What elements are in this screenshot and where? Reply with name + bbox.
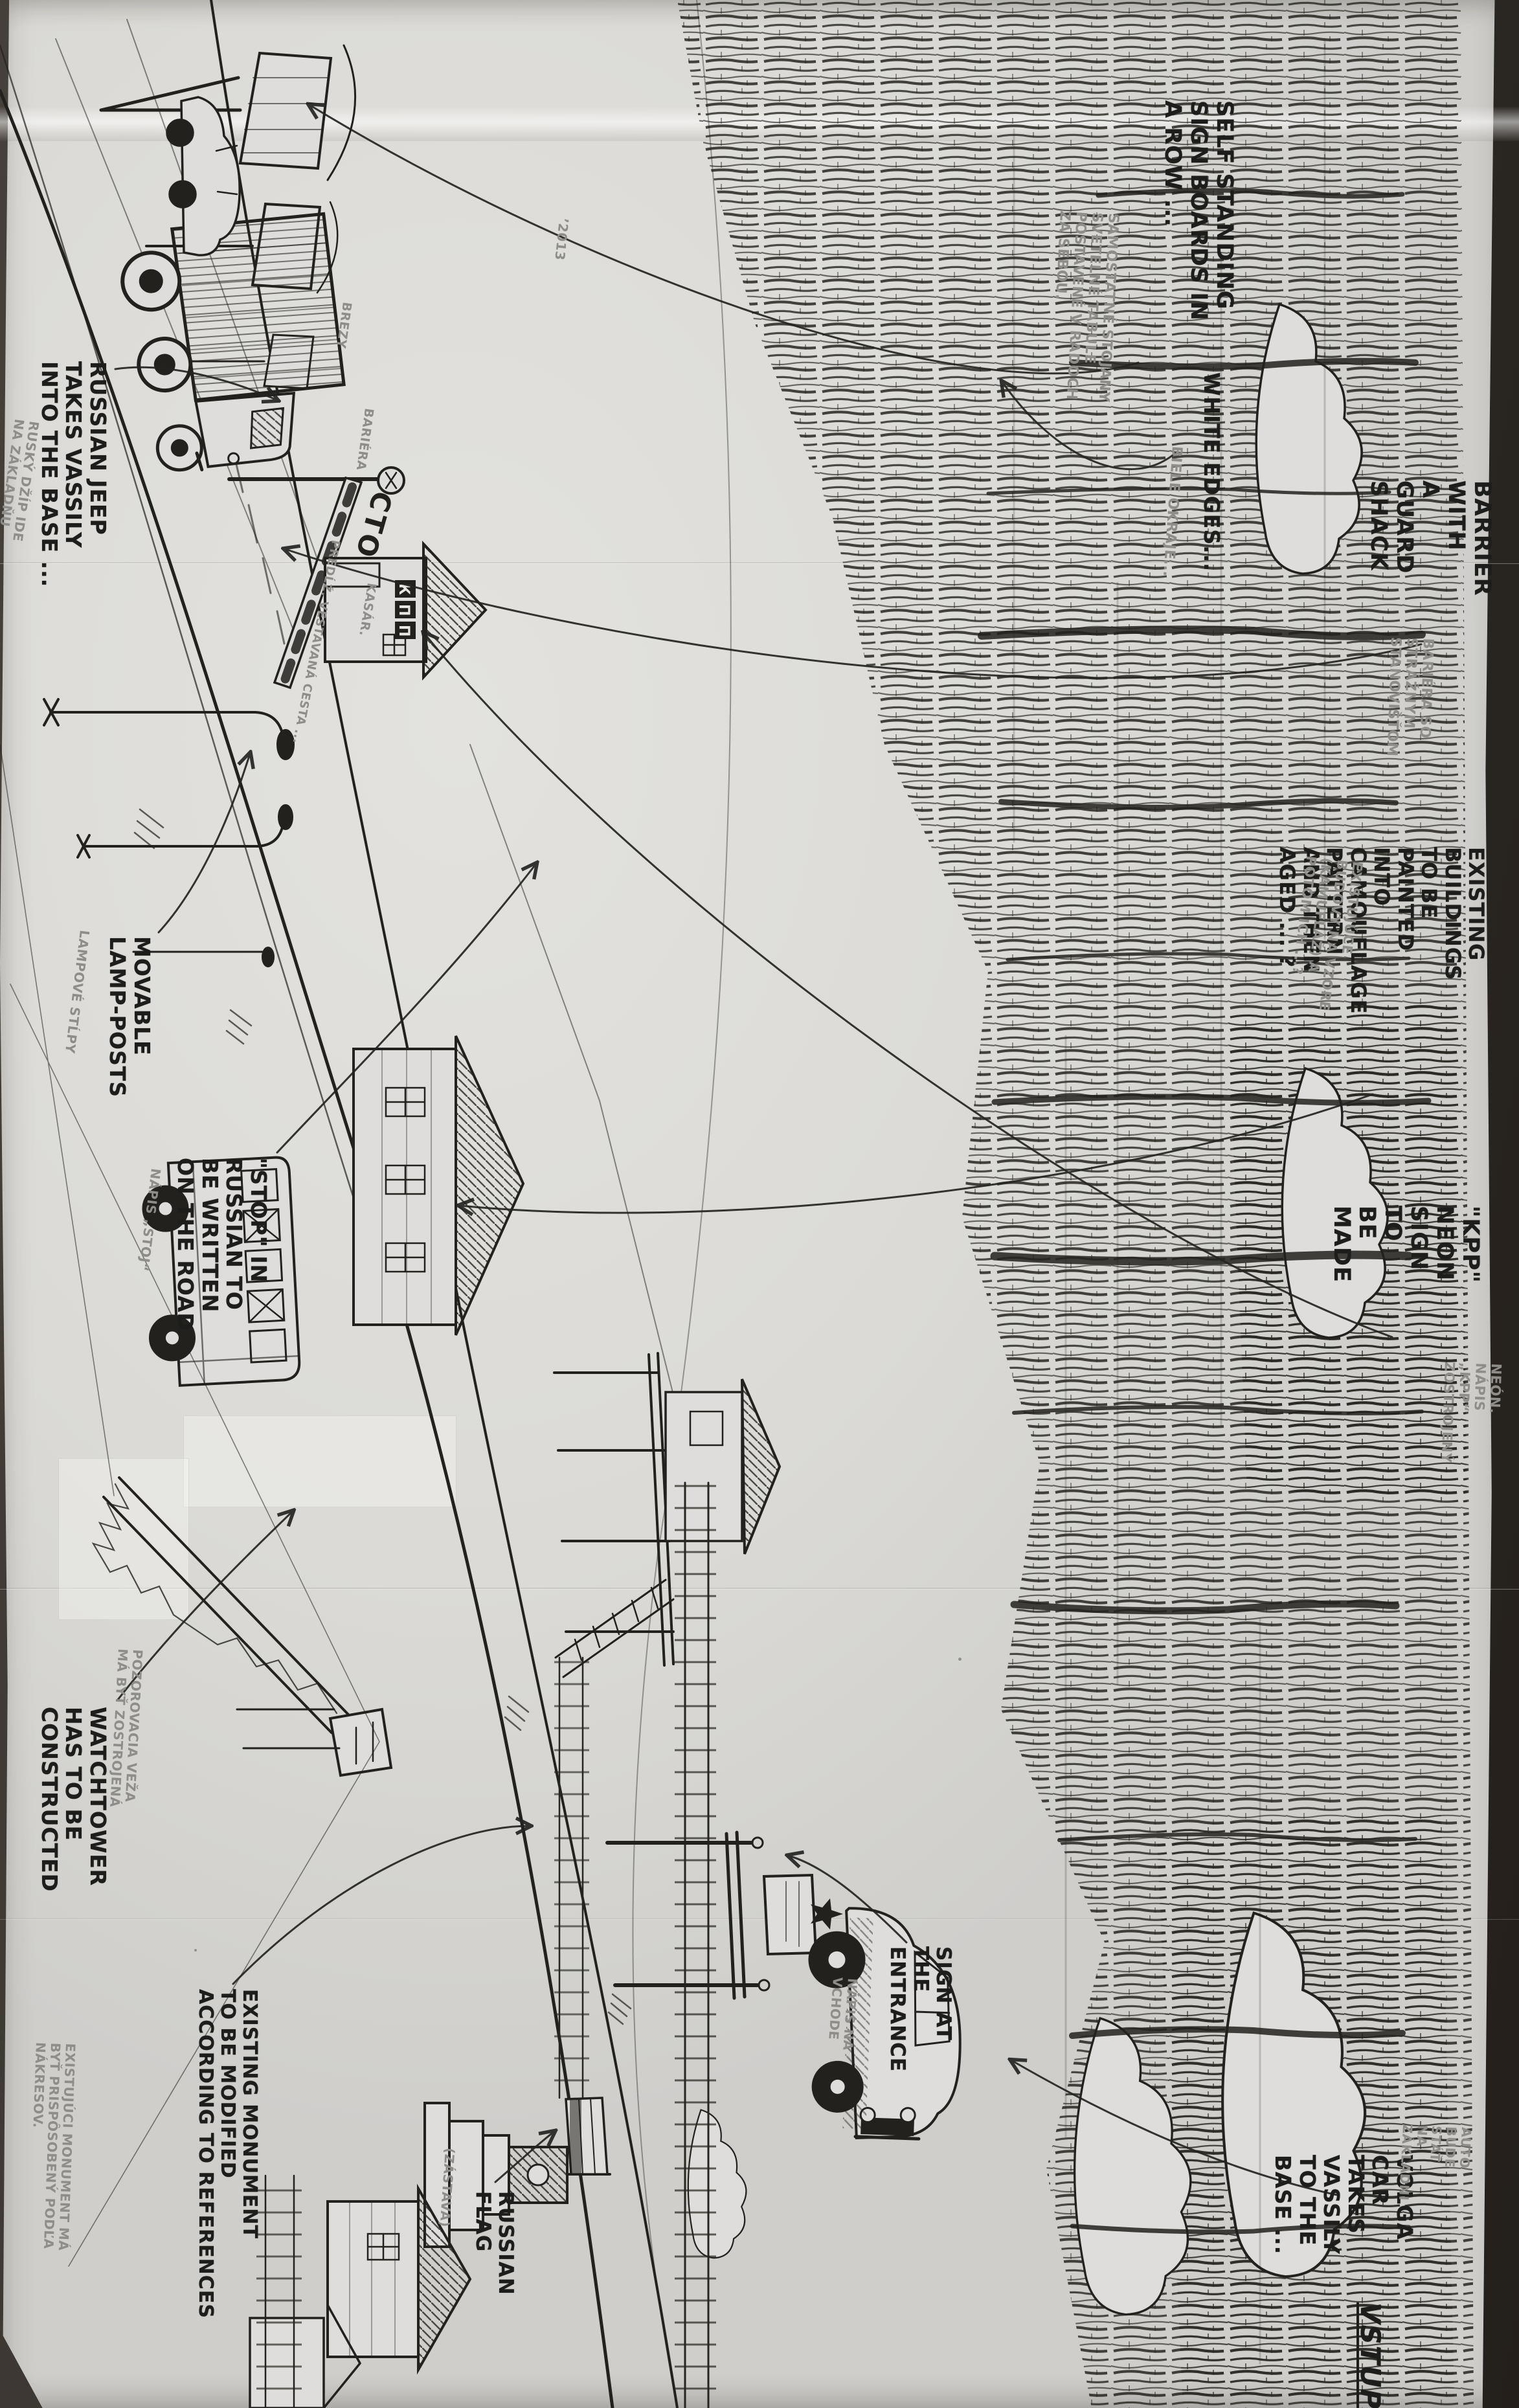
note-volga-car-sk: AUTO BUDE STÁŤ NA ZÁKLADNI (1396, 2124, 1474, 2204)
note-existing-monument-sk: EXISTUJÚCI MONUMENT MÁ BYŤ PRISPÔSOBENÝ … (26, 2042, 78, 2251)
note-russian-jeep: RUSSIAN JEEP TAKES VASSILY INTO THE BASE… (37, 361, 110, 587)
note-kpp-neon-sign-sk: NEÓN. NÁPIS „KPP“ ZOSTROJENÝ (1438, 1362, 1503, 1465)
note-existing-monument: EXISTING MONUMENT TO BE MODIFIED ACCORDI… (194, 1989, 260, 2319)
note-barrier-guard-shack: BARRIER WITH A GUARD SHACK (1366, 480, 1494, 596)
note-watchtower: WATCHTOWER HAS TO BE CONSTRUCTED (37, 1707, 110, 1892)
note-self-standing-signs-sk: SAMOSTATNÉ STOJANY SVETELNÉ TABULE POSTA… (1047, 210, 1121, 403)
note-volga-car: VOLGA CAR TAKES VASSILY TO THE BASE ... (1270, 2155, 1417, 2257)
note-kpp-neon-sign: "KPP" NEON SIGN TO BE MADE (1328, 1206, 1483, 1283)
note-vstup: VSTUP (1355, 2302, 1386, 2408)
note-movable-lamp-posts: MOVABLE LAMP-POSTS (106, 936, 154, 1097)
note-sign-at-entrance: SIGN AT THE ENTRANCE (886, 1946, 954, 2072)
note-self-standing-signs: SELF STANDING SIGN BOARDS IN A ROW ... (1159, 100, 1237, 321)
note-russian-flag: RUSSIAN FLAG (471, 2191, 517, 2295)
photo-backdrop: СТОП СТОП К П П (0, 0, 1519, 2408)
note-stop-in-russian: "STOP" IN RUSSIAN TO BE WRITTEN ON THE R… (174, 1158, 271, 1331)
note-white-edges: WHITE EDGES... (1199, 372, 1224, 572)
note-barrier-guard-shack-sk: BARIÉRA SO STRÁŽNYM STANOVIŠŤOM (1383, 636, 1436, 758)
note-sign-at-entrance-sk: NÁPIS NA VCHODE (826, 1977, 860, 2051)
